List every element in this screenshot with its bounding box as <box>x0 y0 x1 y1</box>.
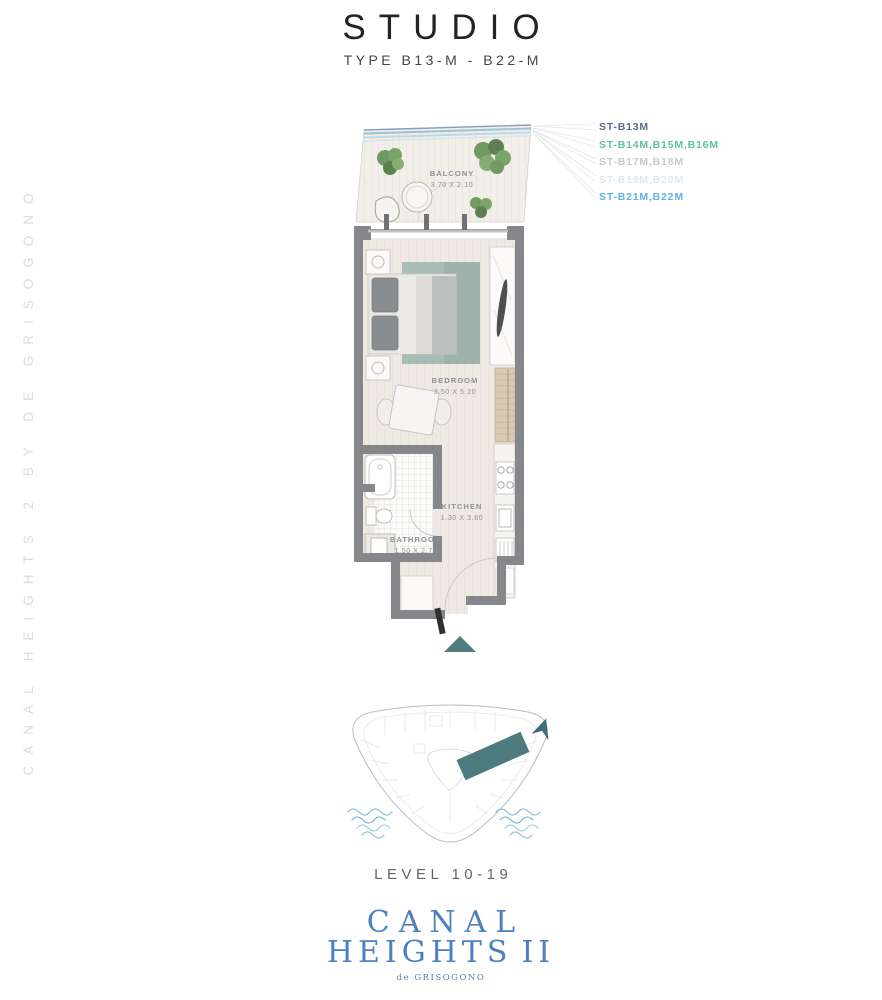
unit-legend: ST-B13M ST-B14M,B15M,B16M ST-B17M,B18M S… <box>599 119 719 207</box>
brand-numeral: II <box>521 935 555 970</box>
page-header: STUDIO TYPE B13-M - B22-M <box>0 8 882 68</box>
brand-name: HEIGHTS <box>327 935 513 970</box>
legend-item-st-b19-20m: ST-B19M,B20M <box>599 172 719 190</box>
balcony-table <box>402 182 432 212</box>
kitchen-label: KITCHEN <box>442 502 483 511</box>
bedroom-label: BEDROOM <box>432 376 479 385</box>
floorplan-canvas: BALCONY 3.70 X 2.10 BEDROOM 3.50 X 5.20 … <box>0 0 882 1000</box>
bathroom-label: BATHROOM <box>390 535 442 544</box>
legend-item-st-b17-18m: ST-B17M,B18M <box>599 154 719 172</box>
pillow <box>372 278 398 312</box>
bedroom-dims: 3.50 X 5.20 <box>434 389 476 396</box>
bed <box>368 274 456 354</box>
page-subtitle: TYPE B13-M - B22-M <box>0 52 882 68</box>
entry-closet <box>401 576 433 612</box>
bathtub-icon <box>365 455 395 499</box>
brand-logo: CANAL HEIGHTSII de GRISOGONO <box>0 908 882 983</box>
side-watermark: CANAL HEIGHTS 2 BY DE GRISOGONO <box>21 179 39 779</box>
brand-line2: HEIGHTSII <box>0 938 882 968</box>
level-label: LEVEL 10-19 <box>0 866 882 883</box>
legend-item-st-b14-16m: ST-B14M,B15M,B16M <box>599 137 719 155</box>
legend-item-st-b13m: ST-B13M <box>599 119 719 137</box>
stove-icon <box>496 462 514 494</box>
kitchen-sink-icon <box>496 505 514 531</box>
legend-leader-lines <box>533 124 596 199</box>
keyplan-map <box>353 705 547 842</box>
legend-item-st-b21-22m: ST-B21M,B22M <box>599 189 719 207</box>
pillow <box>372 316 398 350</box>
balcony-label: BALCONY <box>430 169 475 178</box>
page-title: STUDIO <box>0 8 882 48</box>
brand-tagline: de GRISOGONO <box>0 973 882 983</box>
nightstand <box>366 250 390 274</box>
wardrobe <box>490 247 515 365</box>
entrance-arrow-icon <box>444 636 476 652</box>
kitchen-dims: 1.30 X 3.80 <box>441 515 483 522</box>
brand-line1: CANAL <box>0 908 882 938</box>
nightstand <box>366 356 390 380</box>
bathroom-dims: 1.50 X 2.70 <box>395 548 437 555</box>
balcony-dims: 3.70 X 2.10 <box>431 182 473 189</box>
utility-cabinet <box>495 368 515 442</box>
